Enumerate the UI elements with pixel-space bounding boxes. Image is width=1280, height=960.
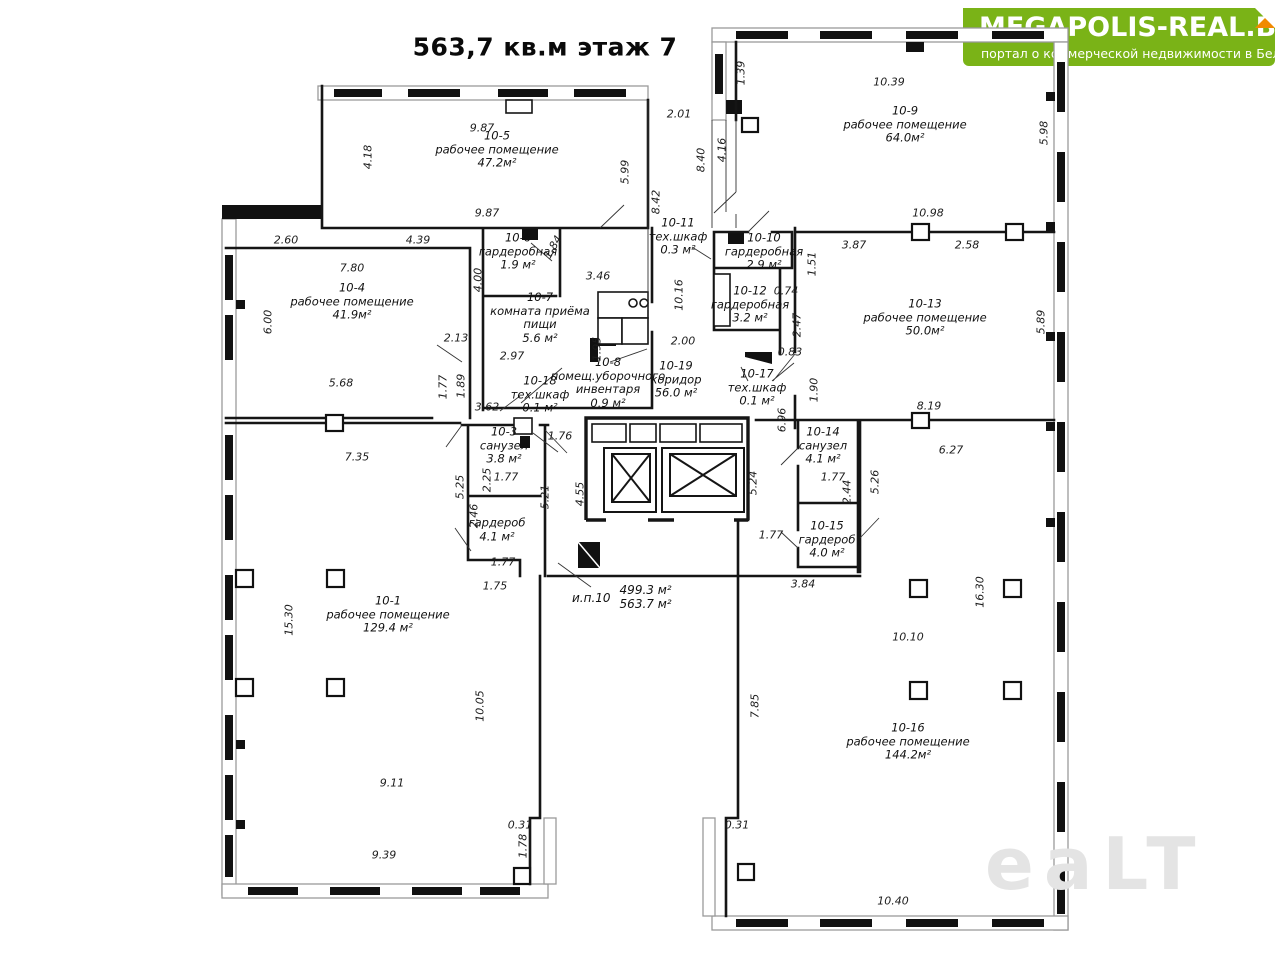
- floorplan-drawing: [0, 0, 1280, 960]
- elevator-shaft-icon: [662, 448, 744, 512]
- elevator-core: [586, 418, 748, 520]
- watermark: eaLT: [985, 822, 1206, 906]
- total-area-id: и.п.10: [572, 591, 611, 605]
- stair-flag: [578, 542, 600, 568]
- total-area-label: и.п.10 499.3 м² 563.7 м²: [572, 584, 672, 612]
- total-area-lower: 563.7 м²: [620, 598, 672, 612]
- floor-plan-page: 563,7 кв.м этаж 7 MEGAPOLIS-REAL.BY порт…: [0, 0, 1280, 960]
- door-swing-lines: [437, 192, 879, 587]
- elevator-shaft-icon: [604, 448, 656, 512]
- window-bands: [222, 28, 1068, 930]
- total-area-upper: 499.3 м²: [620, 584, 672, 598]
- walls: [226, 42, 1054, 916]
- exterior-windows: [225, 31, 1065, 927]
- kitchen-fixtures: [506, 100, 730, 434]
- wall-tabs: [222, 42, 1055, 829]
